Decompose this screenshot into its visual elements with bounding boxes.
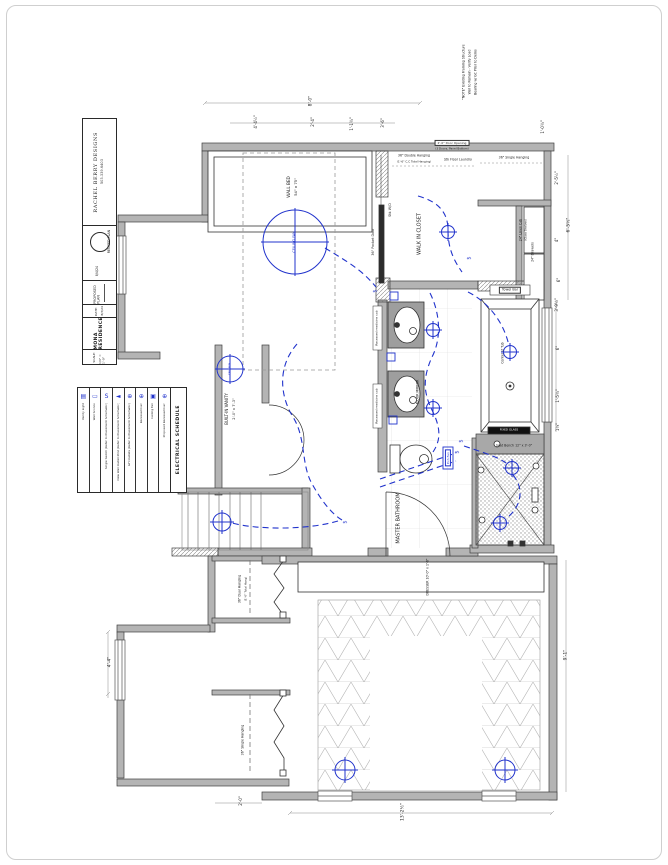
fixture-label: WALL BED: [287, 176, 291, 198]
fixture-label: CEILING FAN: [293, 231, 297, 252]
fixture-label: Center of Tub: [501, 342, 504, 363]
fixture-label: Towel Bar: [499, 287, 521, 294]
dimension-label: 1'-5¾": [556, 389, 560, 402]
fixture-label: FLOOR MIRROR: [416, 380, 419, 405]
floor-plan-page: RACHEL BERRY DESIGNS 503.339.6403 REVISE…: [0, 0, 668, 865]
dimension-label: 4": [555, 238, 559, 242]
room-label: MASTER BATHROOM: [396, 492, 401, 543]
fixture-label: 54" x 75": [294, 178, 298, 196]
plan-labels: "NOTE" Existing Framing StructureWall to…: [0, 0, 668, 865]
fixture-label: 36" Dual Hanging: [238, 575, 241, 603]
fixture-label: BUILT-IN VANITY: [225, 393, 229, 425]
dimension-label: 2'-5½": [555, 171, 559, 184]
fixture-label: 36" Double Hanging: [398, 154, 430, 157]
fixture-label: Recessed medicine cab: [375, 310, 378, 345]
dimension-label: 2'-0": [239, 796, 243, 805]
fixture-label: (3 Doors, Panel Bottom): [435, 148, 469, 151]
fixture-label: Seat Bench 12" x 3'-0": [496, 444, 532, 447]
fixture-label: CEIL FAN: [229, 363, 232, 375]
room-label: WALK IN CLOSET: [417, 213, 422, 255]
switch-symbol: $: [455, 450, 460, 453]
fixture-label: (1'-6" C.C Total Hanging): [397, 161, 432, 164]
note-label: "NOTE" Existing Framing Structure: [462, 44, 465, 99]
fixture-label: 2'-0" x 7'-3": [233, 398, 237, 419]
dimension-label: 6'-5½": [568, 217, 573, 232]
dimension-label: 13'-2½": [402, 803, 407, 821]
fixture-label: 36" Single Hanging: [499, 156, 530, 159]
switch-symbol: $: [459, 439, 464, 442]
fixture-label: 24" Drawers: [531, 242, 534, 262]
dimension-label: 3'-9½": [555, 298, 559, 311]
fixture-label: (Glass Shelves): [525, 219, 528, 241]
dimension-label: 1'-1¾": [350, 117, 354, 130]
dimension-label: 1¼": [556, 423, 560, 431]
note-label: Bearing w/ GC Prior to Demo: [474, 49, 477, 95]
fixture-label: DRESSER 10'-0" x 1'-6": [426, 558, 429, 595]
dimension-label: 6": [556, 346, 560, 350]
fixture-label: 24" Linen Cab: [519, 219, 522, 241]
fixture-label: (1'-6" Total Hang): [245, 577, 248, 601]
fixture-label: Stk W/D: [389, 203, 393, 217]
fixture-label: Exh Fan: [445, 450, 451, 467]
switch-symbol: $: [373, 289, 378, 292]
dimension-label: 6": [557, 278, 561, 282]
dimension-label: 2'-4": [311, 117, 315, 126]
fixture-label: Recessed medicine cab: [375, 388, 378, 423]
note-label: Wall to Remain - Verify Load: [468, 50, 471, 95]
dimension-label: 3'-6": [381, 118, 385, 127]
fixture-label: 36" Single Hanging: [241, 725, 244, 756]
fixture-label: FIXED GLASS: [500, 429, 518, 432]
fixture-label: Stk Floor Laundry: [444, 158, 472, 161]
dimension-label: 4'-4½": [254, 115, 258, 128]
dimension-label: 4'-4": [109, 657, 114, 668]
switch-symbol: $: [343, 520, 348, 523]
dimension-label: 1'-0¾": [541, 120, 545, 133]
dimension-label: 8'-0": [310, 96, 315, 107]
fixture-label: 36" Pocket Door: [372, 228, 376, 255]
dimension-label: 9'-1": [565, 650, 570, 661]
fixture-label: 2'-0" Door Opening: [435, 140, 470, 146]
switch-symbol: $: [467, 256, 472, 259]
